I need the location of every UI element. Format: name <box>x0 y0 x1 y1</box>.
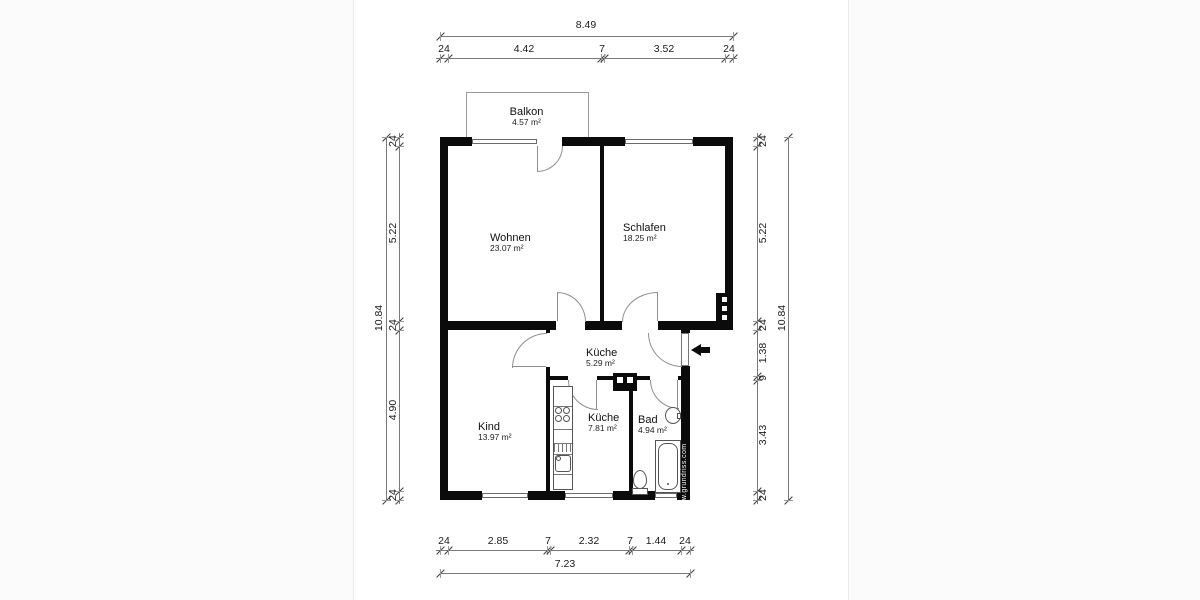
room-area: 5.29 m² <box>586 359 617 368</box>
dim-label: 5.22 <box>387 223 399 243</box>
kitchen-drawer-hatch <box>554 443 572 452</box>
door-leaf-wohnen <box>557 292 558 321</box>
dim-label: 3.43 <box>757 425 769 445</box>
shaft-vent <box>617 377 623 383</box>
dim-label: 24 <box>679 535 691 547</box>
dim-label: 24 <box>723 43 735 55</box>
dim-label: 24 <box>387 135 399 147</box>
dim-label: 10.84 <box>373 305 385 331</box>
dim-label: 8.49 <box>576 19 596 31</box>
floor-plan: www.grundriss.com Balkon 4.57 m² Wohnen … <box>0 0 1200 600</box>
room-area: 7.81 m² <box>588 424 619 433</box>
window-wohnen <box>472 137 537 146</box>
dim-label: 1.44 <box>646 535 666 547</box>
room-area: 4.94 m² <box>638 426 667 435</box>
room-label-bad: Bad 4.94 m² <box>638 414 667 435</box>
dim-label: 24 <box>387 319 399 331</box>
dim-label: 24 <box>387 489 399 501</box>
door-arc-schlafen <box>622 292 658 322</box>
room-area: 18.25 m² <box>623 234 666 243</box>
faucet-icon <box>556 456 561 461</box>
kitchen-counter <box>553 386 573 490</box>
stove-burner-icon <box>563 415 570 422</box>
watermark: www.grundriss.com <box>681 379 688 511</box>
door-arc-bad <box>650 380 679 409</box>
dim-label: 24 <box>757 135 769 147</box>
dim-label: 10.84 <box>776 305 788 331</box>
toilet-bowl <box>633 470 647 489</box>
door-opening-wohnen <box>556 321 585 330</box>
room-label-kueche2: Küche 7.81 m² <box>588 412 619 433</box>
room-label-kueche1: Küche 5.29 m² <box>586 347 617 368</box>
door-arc-wohnen <box>557 292 586 322</box>
dim-line-top-total <box>440 36 733 37</box>
dim-label: 24 <box>438 535 450 547</box>
dim-label: 3.52 <box>654 43 674 55</box>
wall-kueche-bad <box>629 380 633 491</box>
dim-line-bottom-total <box>440 573 690 574</box>
door-opening-balcony <box>537 137 562 146</box>
stove-burner-icon <box>555 415 562 422</box>
stove-burner-icon <box>555 407 562 414</box>
stove-burner-icon <box>563 407 570 414</box>
wall-left <box>440 137 448 500</box>
dim-label: 9 <box>757 375 769 381</box>
shaft-vent <box>627 377 633 383</box>
room-label-wohnen: Wohnen 23.07 m² <box>490 232 531 253</box>
shaft-vent <box>722 297 727 302</box>
dim-label: 1.38 <box>757 343 769 363</box>
dim-label: 4.42 <box>514 43 534 55</box>
wall-middle <box>440 321 733 330</box>
window-kind <box>482 491 528 500</box>
wall-wohnen-schlafen <box>600 146 604 321</box>
shaft-vent <box>722 315 727 320</box>
door-leaf-bad <box>677 380 678 408</box>
door-leaf-schlafen <box>657 292 658 321</box>
window-schlafen <box>625 137 693 146</box>
bathtub-drain <box>667 483 669 485</box>
door-leaf-kind <box>512 366 546 367</box>
door-opening-schlafen <box>622 321 658 330</box>
door-leaf-entry <box>681 333 689 366</box>
dim-line-right-total <box>788 137 789 500</box>
dim-label: 24 <box>757 489 769 501</box>
entry-arrow-shaft <box>700 347 710 353</box>
dim-label: 2.32 <box>579 535 599 547</box>
room-area: 4.57 m² <box>466 118 587 127</box>
door-leaf-kueche <box>596 380 597 409</box>
room-label-schlafen: Schlafen 18.25 m² <box>623 222 666 243</box>
dim-label: 7.23 <box>555 558 575 570</box>
room-area: 23.07 m² <box>490 244 531 253</box>
room-area: 13.97 m² <box>478 433 512 442</box>
dim-label: 4.90 <box>387 400 399 420</box>
toilet-tank <box>632 488 648 495</box>
door-arc-entry <box>648 333 682 367</box>
door-arc-kind <box>512 333 547 368</box>
dim-label: 7 <box>545 535 551 547</box>
room-label-balkon: Balkon 4.57 m² <box>466 106 587 127</box>
dim-label: 7 <box>599 43 605 55</box>
dim-label: 7 <box>627 535 633 547</box>
room-label-kind: Kind 13.97 m² <box>478 421 512 442</box>
dim-line-top-chain <box>436 58 737 59</box>
shaft-vent <box>722 306 727 311</box>
dim-label: 5.22 <box>757 223 769 243</box>
dim-label: 24 <box>757 319 769 331</box>
dim-label: 24 <box>438 43 450 55</box>
dim-label: 2.85 <box>488 535 508 547</box>
door-leaf-balcony <box>537 146 538 171</box>
dim-line-bottom-chain <box>436 550 694 551</box>
door-arc-balcony <box>537 146 563 172</box>
window-kueche <box>565 491 613 500</box>
